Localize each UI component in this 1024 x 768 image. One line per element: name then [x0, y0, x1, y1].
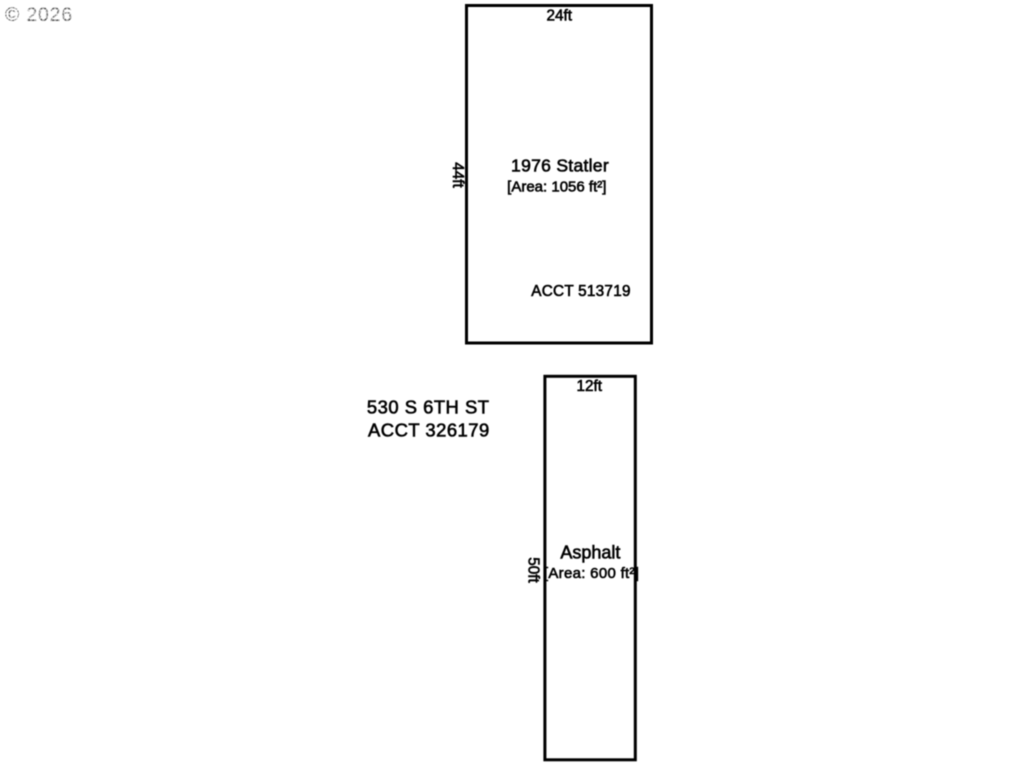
svg-text:50ft: 50ft: [525, 557, 542, 583]
svg-text:ACCT 326179: ACCT 326179: [368, 419, 490, 440]
svg-text:[Area: 1056 ft²]: [Area: 1056 ft²]: [507, 178, 606, 195]
svg-text:[Area: 600 ft²]: [Area: 600 ft²]: [544, 565, 639, 582]
svg-text:ACCT 513719: ACCT 513719: [531, 283, 630, 300]
svg-text:Asphalt: Asphalt: [560, 542, 620, 562]
svg-text:1976 Statler: 1976 Statler: [511, 156, 609, 176]
svg-text:24ft: 24ft: [547, 8, 573, 25]
svg-text:44ft: 44ft: [449, 162, 466, 188]
svg-text:530 S 6TH ST: 530 S 6TH ST: [367, 396, 490, 417]
svg-text:© 2026: © 2026: [5, 4, 73, 26]
svg-text:12ft: 12ft: [577, 378, 603, 395]
